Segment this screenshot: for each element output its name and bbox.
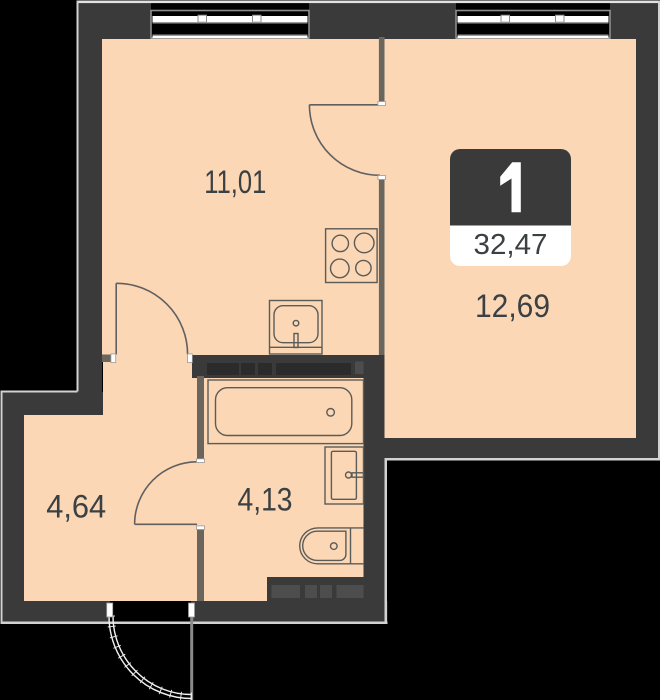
svg-text:12,69: 12,69 (475, 288, 550, 324)
svg-text:11,01: 11,01 (204, 164, 266, 200)
svg-text:4,13: 4,13 (238, 482, 293, 518)
svg-text:4,64: 4,64 (46, 489, 106, 525)
svg-text:32,47: 32,47 (474, 229, 548, 261)
